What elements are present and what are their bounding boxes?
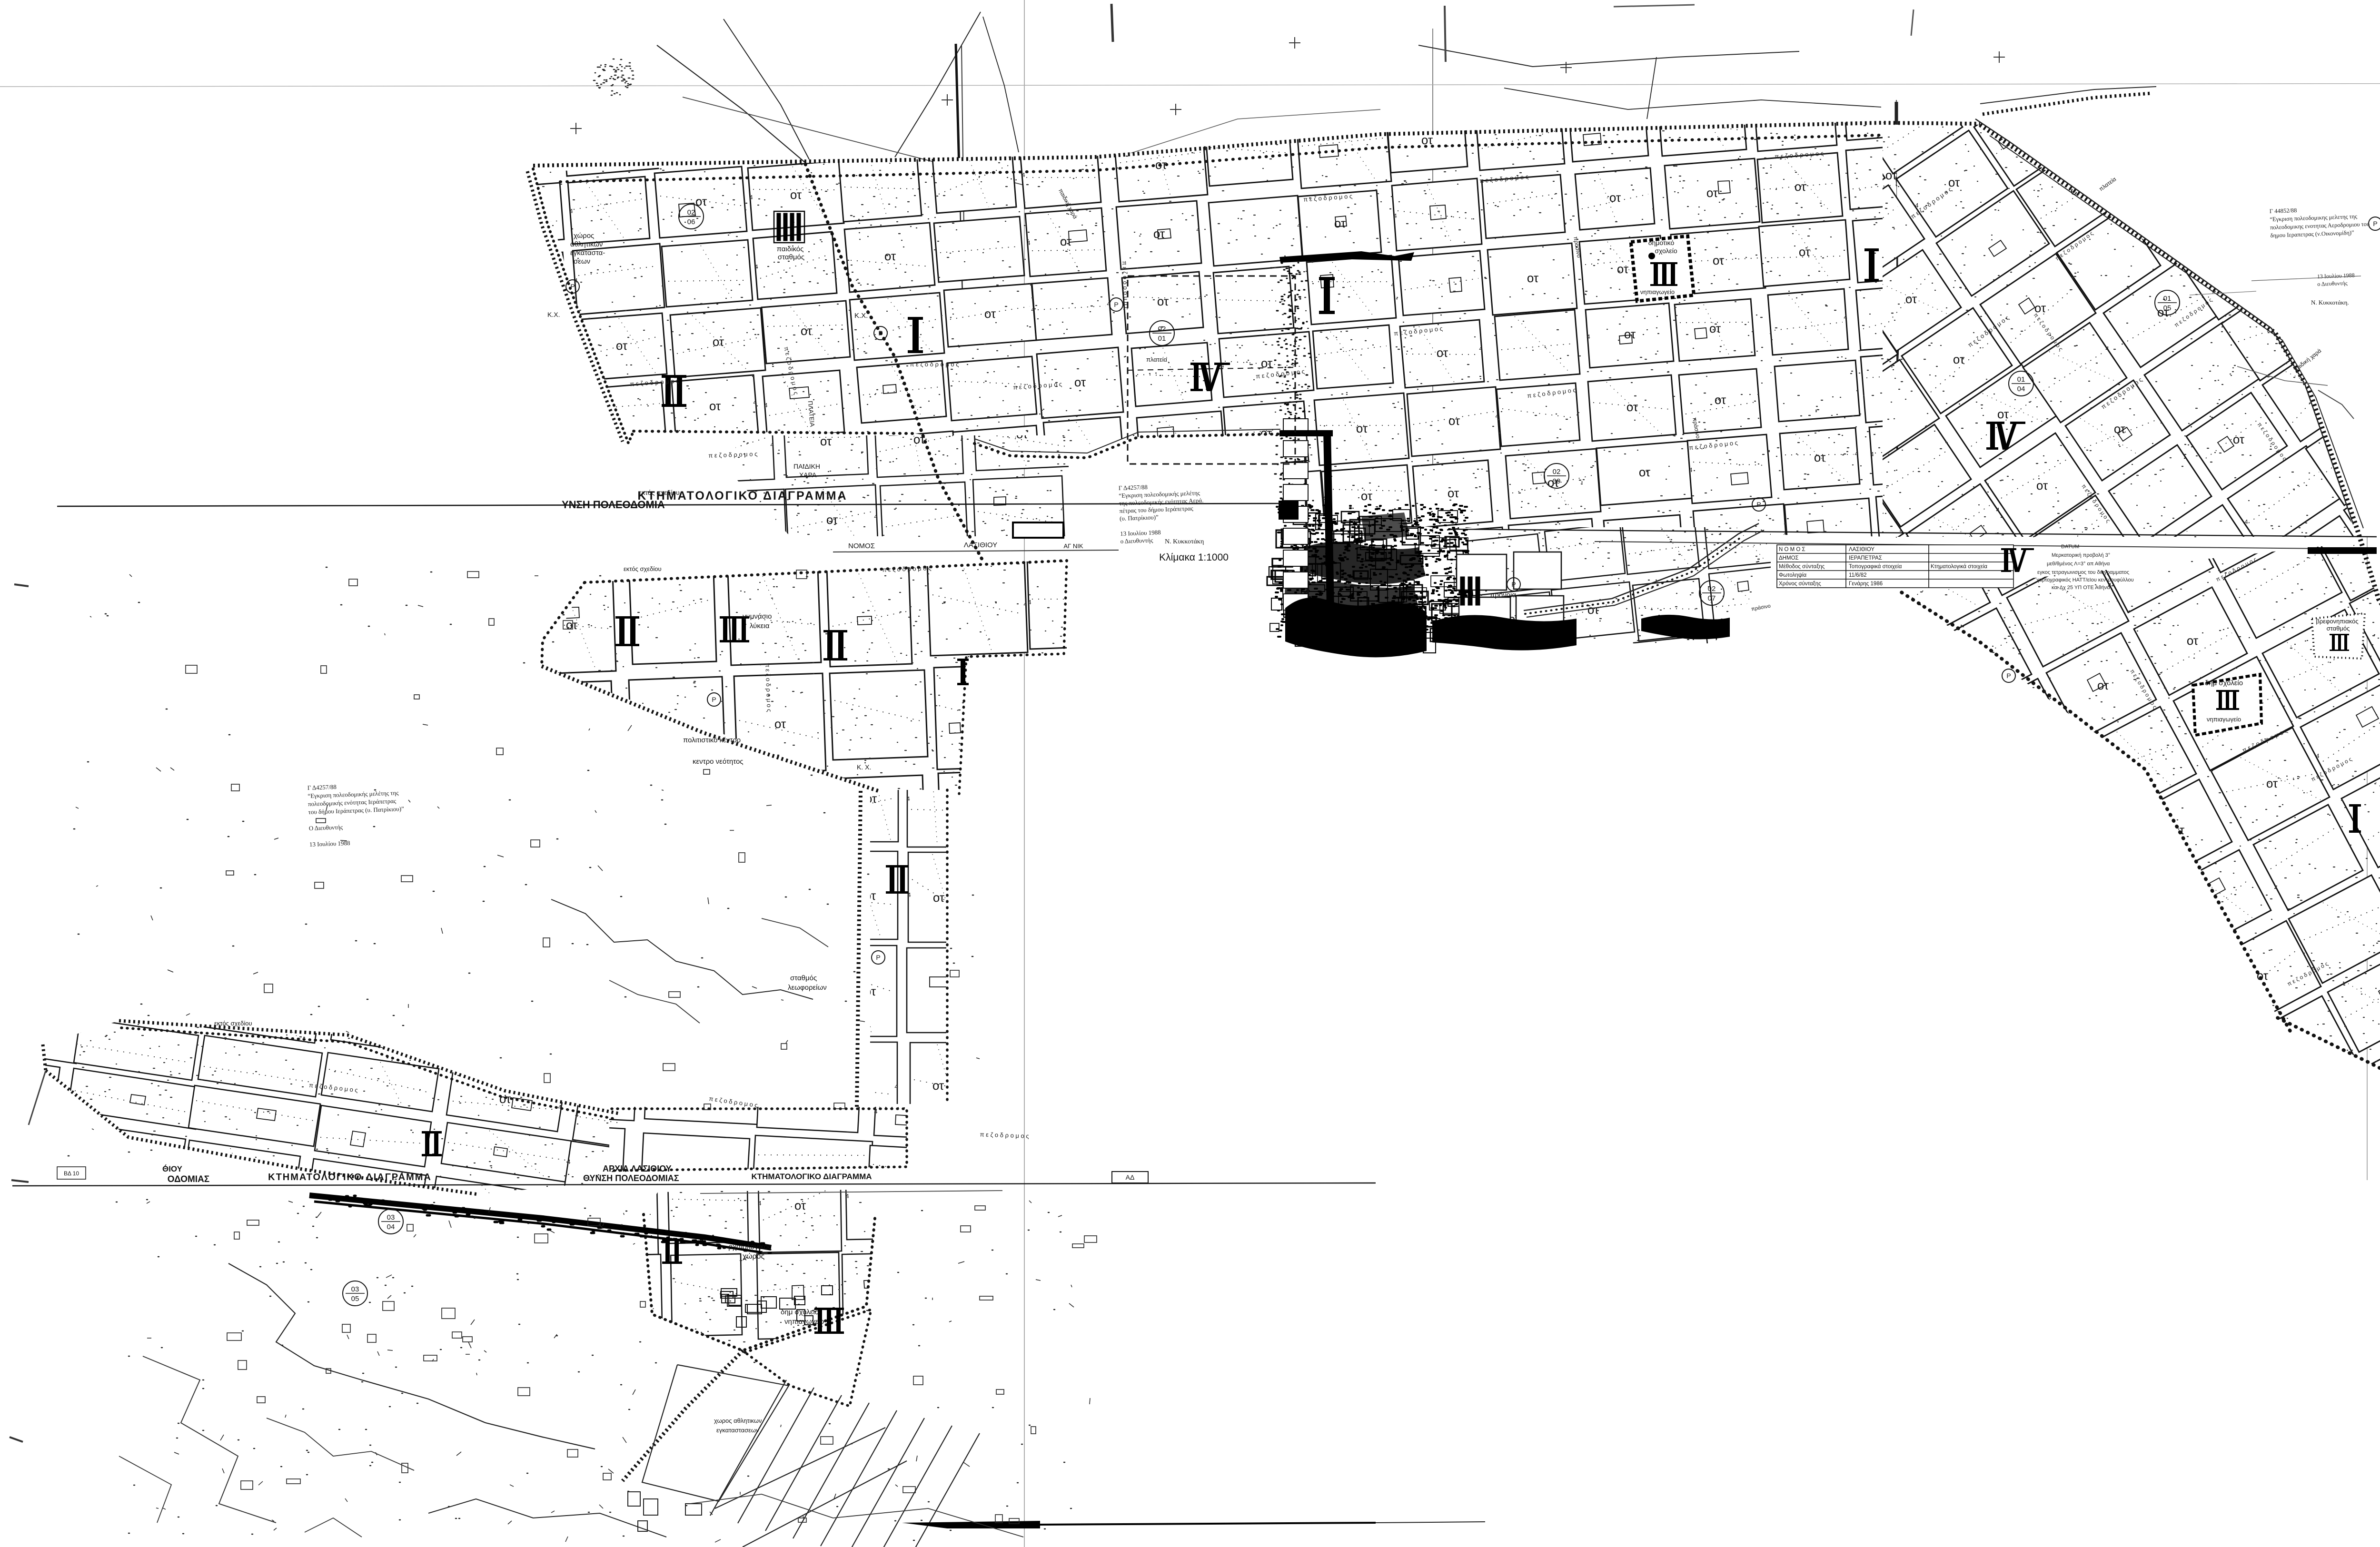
svg-text:ΔΗΜΟΣ: ΔΗΜΟΣ bbox=[1779, 555, 1799, 561]
svg-text:κεντρο νεότητος: κεντρο νεότητος bbox=[693, 758, 744, 766]
svg-text:ΙΕΡΑΠΕΤΡΑΣ: ΙΕΡΑΠΕΤΡΑΣ bbox=[1849, 555, 1882, 561]
svg-text:σταθμός: σταθμός bbox=[2327, 625, 2350, 632]
svg-text:οτ: οτ bbox=[1617, 262, 1629, 276]
svg-text:βρεφονηπιακός: βρεφονηπιακός bbox=[2316, 618, 2358, 625]
svg-text:οτ: οτ bbox=[1709, 321, 1721, 335]
svg-text:4: 4 bbox=[569, 207, 573, 215]
svg-text:οτ: οτ bbox=[1609, 190, 1621, 205]
svg-text:οτ: οτ bbox=[713, 335, 724, 349]
svg-text:4: 4 bbox=[1196, 226, 1200, 233]
svg-text:εκτός σχεδίου: εκτός σχεδίου bbox=[624, 565, 662, 572]
svg-text:χώρος: χώρος bbox=[574, 232, 594, 240]
svg-text:11/6/82: 11/6/82 bbox=[1849, 572, 1867, 578]
svg-text:4: 4 bbox=[1028, 599, 1031, 606]
svg-text:ΛΑΣΙΘΙΟΥ: ΛΑΣΙΘΙΟΥ bbox=[1849, 547, 1874, 552]
svg-text:πλατεία: πλατεία bbox=[1146, 356, 1168, 363]
svg-text:05: 05 bbox=[351, 1295, 359, 1303]
svg-text:και Δχ 25 ΥΠ ΟΤΕ Αθήνα: και Δχ 25 ΥΠ ΟΤΕ Αθήνα bbox=[2052, 585, 2110, 591]
svg-text:οτ: οτ bbox=[1814, 450, 1826, 464]
svg-text:οτ: οτ bbox=[695, 194, 707, 208]
svg-text:οτ: οτ bbox=[774, 717, 786, 731]
svg-text:ΒΔ 10: ΒΔ 10 bbox=[64, 1170, 79, 1177]
svg-text:ΠΑΙΔΙΚΗ: ΠΑΙΔΙΚΗ bbox=[793, 463, 820, 470]
svg-text:13 Ιουλίου 1988: 13 Ιουλίου 1988 bbox=[2317, 272, 2355, 280]
svg-text:οτ: οτ bbox=[1626, 400, 1638, 414]
svg-text:οτ: οτ bbox=[984, 306, 996, 321]
svg-text:4: 4 bbox=[1996, 506, 1999, 513]
svg-text:Κ.Χ.: Κ.Χ. bbox=[854, 312, 868, 320]
svg-text:οτ: οτ bbox=[2233, 432, 2245, 446]
svg-text:01: 01 bbox=[1158, 335, 1166, 343]
svg-text:05: 05 bbox=[2163, 304, 2172, 312]
svg-text:Κτηματολογικά στοιχεία: Κτηματολογικά στοιχεία bbox=[1931, 564, 1987, 570]
svg-text:4: 4 bbox=[845, 1192, 849, 1200]
svg-text:04: 04 bbox=[2017, 385, 2025, 393]
svg-text:Ν Ο Μ Ο Σ: Ν Ο Μ Ο Σ bbox=[1779, 547, 1805, 552]
svg-text:γυμνάσιο: γυμνάσιο bbox=[743, 612, 772, 621]
svg-text:χωρος αθλητικων: χωρος αθλητικων bbox=[714, 1417, 762, 1424]
svg-text:οτ: οτ bbox=[2266, 776, 2278, 790]
svg-text:4: 4 bbox=[874, 513, 877, 520]
svg-text:νηπιαγωγείο: νηπιαγωγείο bbox=[784, 1318, 824, 1326]
svg-text:οτ: οτ bbox=[1361, 489, 1373, 503]
svg-text:οτ: οτ bbox=[1639, 465, 1651, 479]
svg-text:ΑΓ ΝΙΚ: ΑΓ ΝΙΚ bbox=[1063, 542, 1083, 550]
svg-text:4: 4 bbox=[894, 1083, 898, 1090]
svg-text:οτ: οτ bbox=[616, 338, 628, 353]
svg-text:03: 03 bbox=[387, 1213, 395, 1222]
svg-text:ο Διευθυντής: ο Διευθυντής bbox=[2317, 280, 2348, 287]
svg-text:οτ: οτ bbox=[1356, 421, 1368, 435]
svg-text:χώρος: χώρος bbox=[743, 1252, 764, 1261]
svg-text:εγκος τετραγωνισμος του διαγρα: εγκος τετραγωνισμος του διαγραμματος bbox=[2037, 570, 2129, 575]
svg-text:4: 4 bbox=[1023, 601, 1027, 608]
svg-text:οτ: οτ bbox=[2114, 422, 2126, 436]
svg-text:εκτός σχεδίου: εκτός σχεδίου bbox=[214, 1020, 252, 1027]
svg-text:4: 4 bbox=[764, 402, 767, 409]
svg-text:σταθμός: σταθμός bbox=[790, 974, 817, 982]
svg-text:εγκαταστα-: εγκαταστα- bbox=[570, 249, 605, 257]
svg-text:02: 02 bbox=[687, 208, 695, 217]
svg-text:Γ 44852/88: Γ 44852/88 bbox=[2270, 207, 2297, 215]
svg-text:4: 4 bbox=[1479, 345, 1482, 352]
svg-text:οτ: οτ bbox=[566, 618, 578, 632]
svg-text:οτ: οτ bbox=[1997, 407, 2009, 421]
svg-text:οτ: οτ bbox=[2187, 633, 2199, 648]
svg-text:οτ: οτ bbox=[1905, 292, 1917, 306]
svg-text:Ν. Κυκκοτάκη.: Ν. Κυκκοτάκη. bbox=[2311, 299, 2349, 306]
svg-text:P: P bbox=[878, 329, 883, 337]
svg-text:νηπιαγωγείο: νηπιαγωγείο bbox=[1640, 288, 1675, 296]
svg-text:4: 4 bbox=[1870, 451, 1874, 458]
svg-text:Τοπογραφικά στοιχεία: Τοπογραφικά στοιχεία bbox=[1849, 564, 1902, 570]
svg-text:ΥΝΣΗ ΠΟΛΕΟΔΟΜΙΑ: ΥΝΣΗ ΠΟΛΕΟΔΟΜΙΑ bbox=[562, 499, 665, 511]
svg-text:4: 4 bbox=[754, 263, 758, 270]
svg-text:4: 4 bbox=[1689, 466, 1692, 473]
svg-text:οτ: οτ bbox=[790, 187, 802, 202]
svg-text:δημ σχολείο: δημ σχολείο bbox=[2205, 679, 2243, 687]
svg-text:οτ: οτ bbox=[1713, 253, 1725, 267]
svg-text:οτ: οτ bbox=[932, 1078, 944, 1093]
svg-text:ΝΟΜΟΣ: ΝΟΜΟΣ bbox=[848, 542, 875, 550]
svg-text:ΚΤΗΜΑΤΟΛΟΓΙΚΟ ΔΙΑΓΡΑΜΜΑ: ΚΤΗΜΑΤΟΛΟΓΙΚΟ ΔΙΑΓΡΑΜΜΑ bbox=[268, 1172, 432, 1182]
svg-text:4: 4 bbox=[753, 399, 756, 406]
svg-text:σχολείο: σχολείο bbox=[1655, 247, 1677, 255]
svg-text:4: 4 bbox=[758, 1200, 761, 1207]
svg-text:4: 4 bbox=[1854, 450, 1858, 457]
svg-text:4: 4 bbox=[1198, 294, 1201, 301]
svg-text:Ο Διευθυντής: Ο Διευθυντής bbox=[309, 823, 344, 832]
svg-text:οτ: οτ bbox=[1706, 186, 1718, 200]
svg-text:πολιτιστικό κέντρο: πολιτιστικό κέντρο bbox=[683, 736, 741, 744]
svg-text:4: 4 bbox=[1755, 185, 1758, 192]
svg-text:P: P bbox=[2006, 672, 2011, 680]
svg-text:ο Διευθυντής: ο Διευθυντής bbox=[1120, 537, 1153, 545]
svg-text:P: P bbox=[570, 283, 575, 290]
svg-text:ΑΔ: ΑΔ bbox=[1126, 1173, 1135, 1181]
svg-text:Φωτοληψία: Φωτοληψία bbox=[1779, 572, 1806, 578]
svg-text:4: 4 bbox=[2244, 518, 2248, 525]
svg-text:09: 09 bbox=[1553, 477, 1561, 485]
svg-text:ρχαιολογικος: ρχαιολογικος bbox=[728, 1243, 772, 1251]
svg-text:οτ: οτ bbox=[1527, 271, 1539, 285]
svg-text:13 Ιουλίου 1988: 13 Ιουλίου 1988 bbox=[1120, 529, 1161, 537]
svg-text:03: 03 bbox=[351, 1285, 359, 1293]
svg-text:Κ. Χ.: Κ. Χ. bbox=[857, 763, 871, 771]
svg-text:ΧΑΡΑ: ΧΑΡΑ bbox=[799, 471, 817, 479]
svg-text:οτ: οτ bbox=[1799, 245, 1811, 259]
svg-text:4: 4 bbox=[1393, 212, 1397, 219]
svg-text:P: P bbox=[876, 954, 880, 961]
svg-text:π ε ζ ο δ ρ ο μ ο ς: π ε ζ ο δ ρ ο μ ο ς bbox=[910, 361, 959, 368]
svg-text:07: 07 bbox=[1708, 594, 1716, 602]
svg-text:4: 4 bbox=[2105, 345, 2109, 352]
svg-text:P: P bbox=[1114, 301, 1118, 308]
svg-text:οτ: οτ bbox=[1060, 234, 1072, 248]
svg-text:νηπιαγωγείο: νηπιαγωγείο bbox=[2207, 716, 2241, 723]
svg-text:ΑΡΧΙΑ ΛΑΣΙΘΙΟΥ: ΑΡΧΙΑ ΛΑΣΙΘΙΟΥ bbox=[603, 1164, 672, 1173]
svg-text:Γενάρης 1986: Γενάρης 1986 bbox=[1849, 581, 1883, 587]
svg-text:ΚΤΗΜΑΤΟΛΟΓΙΚΟ ΔΙΑΓΡΑΜΜΑ: ΚΤΗΜΑΤΟΛΟΓΙΚΟ ΔΙΑΓΡΑΜΜΑ bbox=[751, 1172, 872, 1181]
svg-text:οτ: οτ bbox=[1074, 375, 1086, 389]
svg-text:Γ Δ4257/88: Γ Δ4257/88 bbox=[1119, 483, 1148, 492]
svg-text:02: 02 bbox=[1158, 325, 1166, 333]
svg-text:οτ: οτ bbox=[1437, 345, 1448, 360]
svg-text:οτ: οτ bbox=[820, 434, 832, 448]
svg-text:οτ: οτ bbox=[1334, 216, 1346, 230]
svg-text:δημοτικό: δημοτικό bbox=[1648, 239, 1675, 246]
svg-text:4: 4 bbox=[1027, 239, 1030, 246]
svg-text:ΘΥΝΣΗ ΠΟΛΕΟΔΟΜΙΑΣ: ΘΥΝΣΗ ΠΟΛΕΟΔΟΜΙΑΣ bbox=[583, 1173, 679, 1183]
svg-text:02: 02 bbox=[1708, 585, 1716, 593]
svg-text:P: P bbox=[1756, 501, 1761, 508]
svg-text:αθλητικών: αθλητικών bbox=[570, 240, 603, 248]
svg-text:οτ: οτ bbox=[933, 890, 945, 905]
svg-text:οτ: οτ bbox=[709, 399, 721, 413]
svg-text:οτ: οτ bbox=[1795, 179, 1806, 194]
svg-text:Μέθοδος σύνταξης: Μέθοδος σύνταξης bbox=[1779, 564, 1825, 570]
svg-text:4: 4 bbox=[770, 441, 773, 448]
svg-text:οτ: οτ bbox=[801, 324, 813, 338]
svg-text:εκτός σχεδίου: εκτός σχεδίου bbox=[639, 489, 680, 496]
svg-text:Γ Δ4257/88: Γ Δ4257/88 bbox=[307, 783, 337, 791]
svg-text:παιδικός: παιδικός bbox=[777, 245, 804, 253]
svg-text:οτ: οτ bbox=[2036, 478, 2048, 493]
svg-text:οτ: οτ bbox=[884, 249, 896, 263]
svg-text:Ν. Κυκκοτάκη: Ν. Κυκκοτάκη bbox=[1165, 538, 1204, 545]
svg-text:4: 4 bbox=[1587, 333, 1590, 340]
svg-text:01: 01 bbox=[2163, 295, 2172, 303]
svg-text:οτ: οτ bbox=[1157, 294, 1169, 308]
svg-text:εγκαταστασεων: εγκαταστασεων bbox=[716, 1427, 759, 1434]
svg-text:4: 4 bbox=[2316, 752, 2319, 759]
svg-text:Κλίμακα 1:1000: Κλίμακα 1:1000 bbox=[1159, 552, 1229, 563]
svg-text:4: 4 bbox=[1844, 314, 1847, 321]
svg-text:χαρτογραφικός ΗΑΤΤ/εΙου κεντρο: χαρτογραφικός ΗΑΤΤ/εΙου κεντρουφύλλου bbox=[2036, 577, 2134, 583]
svg-text:οτ: οτ bbox=[1624, 327, 1636, 341]
svg-text:οτ: οτ bbox=[826, 512, 838, 527]
svg-text:DATUM: DATUM bbox=[2061, 544, 2079, 550]
svg-text:4: 4 bbox=[906, 795, 910, 802]
svg-text:οτ: οτ bbox=[794, 1198, 806, 1212]
svg-text:Χρόνος σύνταξης: Χρόνος σύνταξης bbox=[1779, 581, 1821, 587]
svg-text:01: 01 bbox=[2017, 375, 2025, 384]
svg-text:(υ. Πατρίκιου)”: (υ. Πατρίκιου)” bbox=[1120, 513, 1159, 522]
svg-text:06: 06 bbox=[687, 218, 695, 226]
svg-text:4: 4 bbox=[1061, 505, 1064, 512]
svg-text:Κ.Χ.: Κ.Χ. bbox=[547, 311, 560, 318]
svg-text:πρόνοια: πρόνοια bbox=[1490, 591, 1516, 599]
svg-text:οτ: οτ bbox=[1153, 227, 1165, 241]
svg-text:ΛΑΣΙΘΙΟΥ: ΛΑΣΙΘΙΟΥ bbox=[964, 541, 998, 549]
svg-text:σταθμός: σταθμός bbox=[778, 253, 804, 261]
svg-text:ΟΔΟΜΙΑΣ: ΟΔΟΜΙΑΣ bbox=[168, 1174, 209, 1184]
svg-text:λεωφορείων: λεωφορείων bbox=[788, 984, 827, 992]
svg-text:P: P bbox=[1511, 581, 1516, 588]
svg-text:4: 4 bbox=[749, 194, 753, 201]
svg-text:02: 02 bbox=[1553, 468, 1561, 476]
svg-text:οτ: οτ bbox=[1448, 414, 1460, 428]
svg-text:σεων: σεων bbox=[574, 257, 590, 266]
svg-text:4: 4 bbox=[1021, 171, 1025, 178]
svg-text:λύκεια: λύκεια bbox=[750, 622, 770, 630]
svg-text:04: 04 bbox=[387, 1223, 395, 1231]
svg-text:Μερκατορική προβολή 3°: Μερκατορική προβολή 3° bbox=[2052, 552, 2110, 558]
svg-text:οτ: οτ bbox=[2097, 678, 2109, 692]
svg-text:4: 4 bbox=[1391, 281, 1394, 288]
svg-text:P: P bbox=[2373, 220, 2377, 227]
svg-text:P: P bbox=[712, 696, 716, 703]
svg-text:μεθ/θμένος Λ=3° απ Αθήνα: μεθ/θμένος Λ=3° απ Αθήνα bbox=[2047, 561, 2110, 567]
